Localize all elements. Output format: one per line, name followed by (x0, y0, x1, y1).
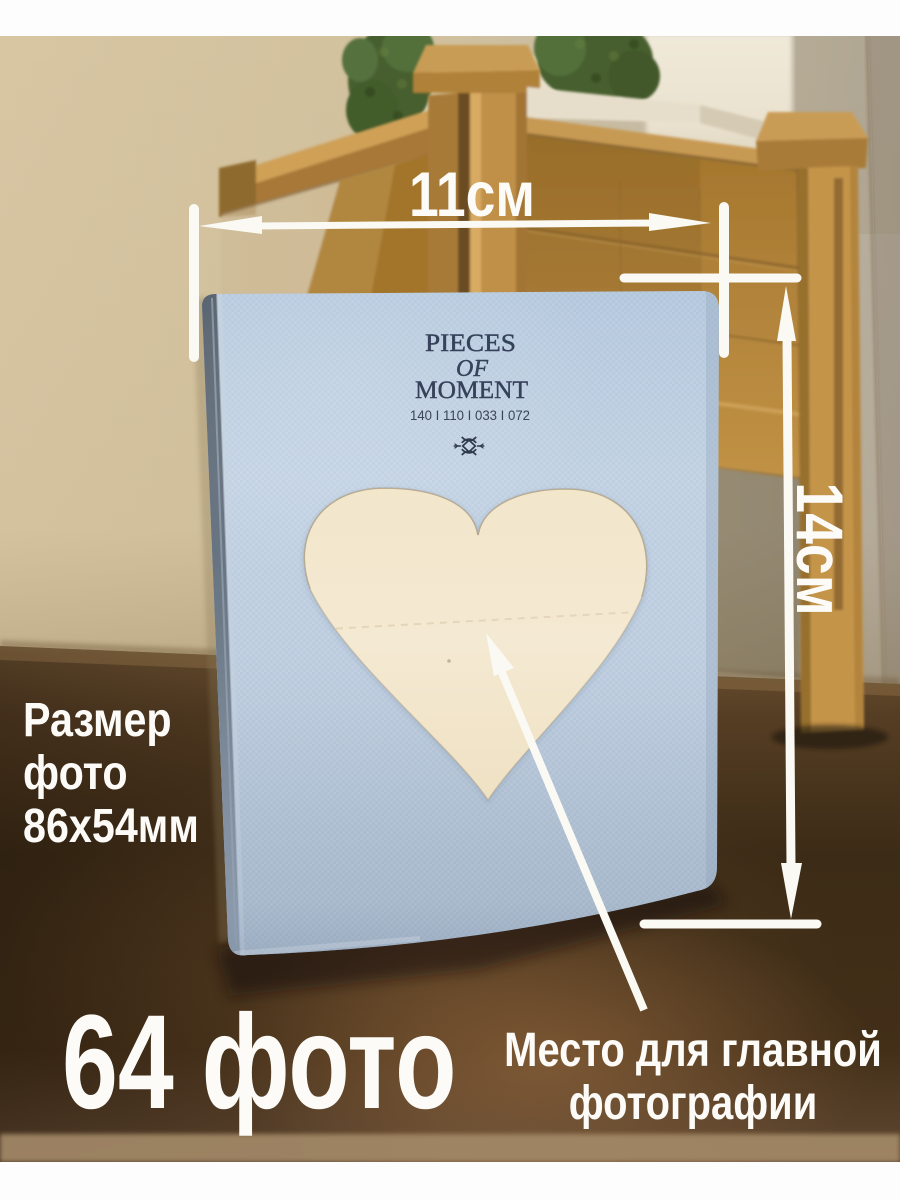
svg-text:MOMENT: MOMENT (415, 377, 528, 404)
svg-text:PIECES: PIECES (425, 330, 516, 357)
svg-text:140 I 110 I 033 I 072: 140 I 110 I 033 I 072 (410, 407, 530, 423)
